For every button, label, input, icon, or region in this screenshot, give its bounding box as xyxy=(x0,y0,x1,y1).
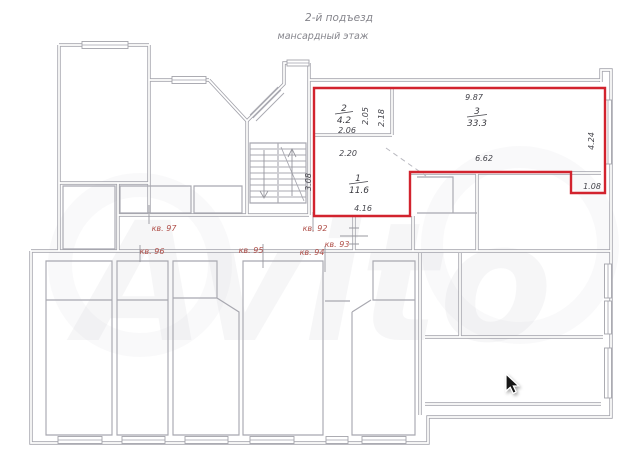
window-icon xyxy=(185,437,228,444)
dim-room1-bottom: 4.16 xyxy=(354,204,372,213)
room-2-area: 4.2 xyxy=(337,116,352,126)
window-icon xyxy=(326,437,348,444)
apartment-label-96: кв. 96 xyxy=(140,247,165,256)
window-icon xyxy=(287,60,309,66)
window-icon xyxy=(58,437,102,444)
apartment-label-95: кв. 95 xyxy=(239,246,264,255)
room-1-area: 11.6 xyxy=(349,186,369,196)
floor-plan-svg: Avito 2-й подъезд мансардный этаж xyxy=(0,0,640,472)
window-icon xyxy=(250,437,294,444)
room-3-area: 33.3 xyxy=(467,119,487,129)
dim-room3-bottom: 6.62 xyxy=(475,154,493,163)
window-icon xyxy=(605,348,612,398)
plan-title-line1: 2-й подъезд xyxy=(305,12,373,24)
apartment-label-97: кв. 97 xyxy=(152,224,178,233)
window-icon xyxy=(605,301,612,334)
apartment-label-94: кв. 94 xyxy=(300,248,325,257)
dim-room3-right: 4.24 xyxy=(587,132,596,150)
plan-title-line2: мансардный этаж xyxy=(278,31,369,42)
dim-room2-bottom: 2.06 xyxy=(338,126,356,135)
window-icon xyxy=(122,437,165,444)
apartment-label-93: кв. 93 xyxy=(325,240,350,249)
room-3-label: 3 33.3 xyxy=(467,107,487,129)
apartment-label-92: кв. 92 xyxy=(303,224,328,233)
diagonal-window-icon xyxy=(250,87,284,121)
dim-room2-left: 2.05 xyxy=(361,107,370,125)
window-icon xyxy=(82,42,128,49)
plan-title: 2-й подъезд мансардный этаж xyxy=(278,12,373,42)
window-icon xyxy=(605,264,612,298)
window-icon xyxy=(362,437,406,444)
window-icon xyxy=(172,77,206,84)
avito-watermark: Avito xyxy=(60,157,608,379)
dim-room1-top: 2.20 xyxy=(339,149,357,158)
room-1-label: 1 11.6 xyxy=(349,174,369,196)
dim-room3-top: 9.87 xyxy=(465,93,484,102)
dim-notch: 1.08 xyxy=(583,182,601,191)
floor-plan-image[interactable]: Avito 2-й подъезд мансардный этаж xyxy=(0,0,640,472)
room-2-label: 2 4.2 xyxy=(335,104,353,126)
dim-room3-left: 2.18 xyxy=(377,109,386,127)
dim-room1-left: 3.08 xyxy=(304,173,313,191)
